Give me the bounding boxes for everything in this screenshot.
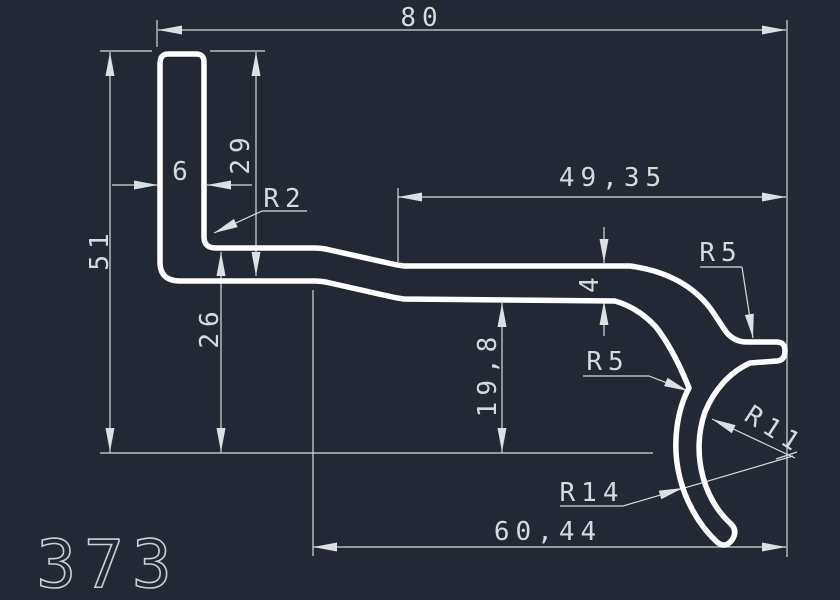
arrow-29-bottom — [252, 252, 261, 276]
arrow-26-bottom — [217, 428, 226, 452]
label-dim-80: 80 — [400, 3, 443, 33]
label-dim-26: 26 — [195, 305, 225, 348]
arrow-6044-left — [313, 543, 337, 552]
arrow-r11 — [712, 419, 736, 433]
label-r2: R2 — [263, 184, 306, 214]
arrow-4935-right — [762, 193, 786, 202]
label-dim-29: 29 — [226, 131, 256, 174]
arrow-r5-top — [745, 314, 754, 338]
label-r5-top: R5 — [699, 238, 742, 268]
dimension-lines — [110, 30, 786, 547]
arrow-4935-left — [398, 193, 422, 202]
arrow-198-top — [498, 303, 507, 327]
label-dim-198: 19,8 — [473, 331, 503, 418]
arrow-80-left — [158, 26, 182, 35]
arrow-198-bottom — [498, 428, 507, 452]
label-dim-6044: 60,44 — [494, 517, 602, 547]
arrow-r2 — [214, 219, 238, 233]
label-dim-4: 4 — [575, 271, 605, 293]
arrow-r14 — [659, 488, 683, 499]
part-number: 373 — [36, 526, 179, 600]
arrow-4-bottom — [600, 301, 609, 325]
arrow-80-right — [762, 26, 786, 35]
label-r11: R11 — [739, 400, 810, 461]
arrowheads — [106, 26, 787, 552]
arrow-29-top — [252, 52, 261, 76]
arrow-6-left — [134, 181, 158, 190]
arrow-6-right — [207, 181, 231, 190]
arrow-26-top — [217, 252, 226, 276]
profile-outline — [160, 54, 785, 545]
label-r5-side: R5 — [586, 347, 629, 377]
arrow-4-top — [600, 239, 609, 263]
label-r14: R14 — [560, 478, 625, 508]
arrow-51-top — [106, 52, 115, 76]
arrow-51-bottom — [106, 428, 115, 452]
label-dim-4935: 49,35 — [559, 163, 667, 193]
label-dim-51: 51 — [85, 227, 115, 270]
leader-r14 — [623, 456, 793, 506]
technical-drawing: 80 49,35 6 29 51 26 19,8 4 60,44 R2 R5 R… — [0, 0, 840, 600]
cad-canvas: 80 49,35 6 29 51 26 19,8 4 60,44 R2 R5 R… — [0, 0, 840, 600]
arrow-6044-right — [762, 543, 786, 552]
label-dim-6: 6 — [172, 157, 194, 187]
